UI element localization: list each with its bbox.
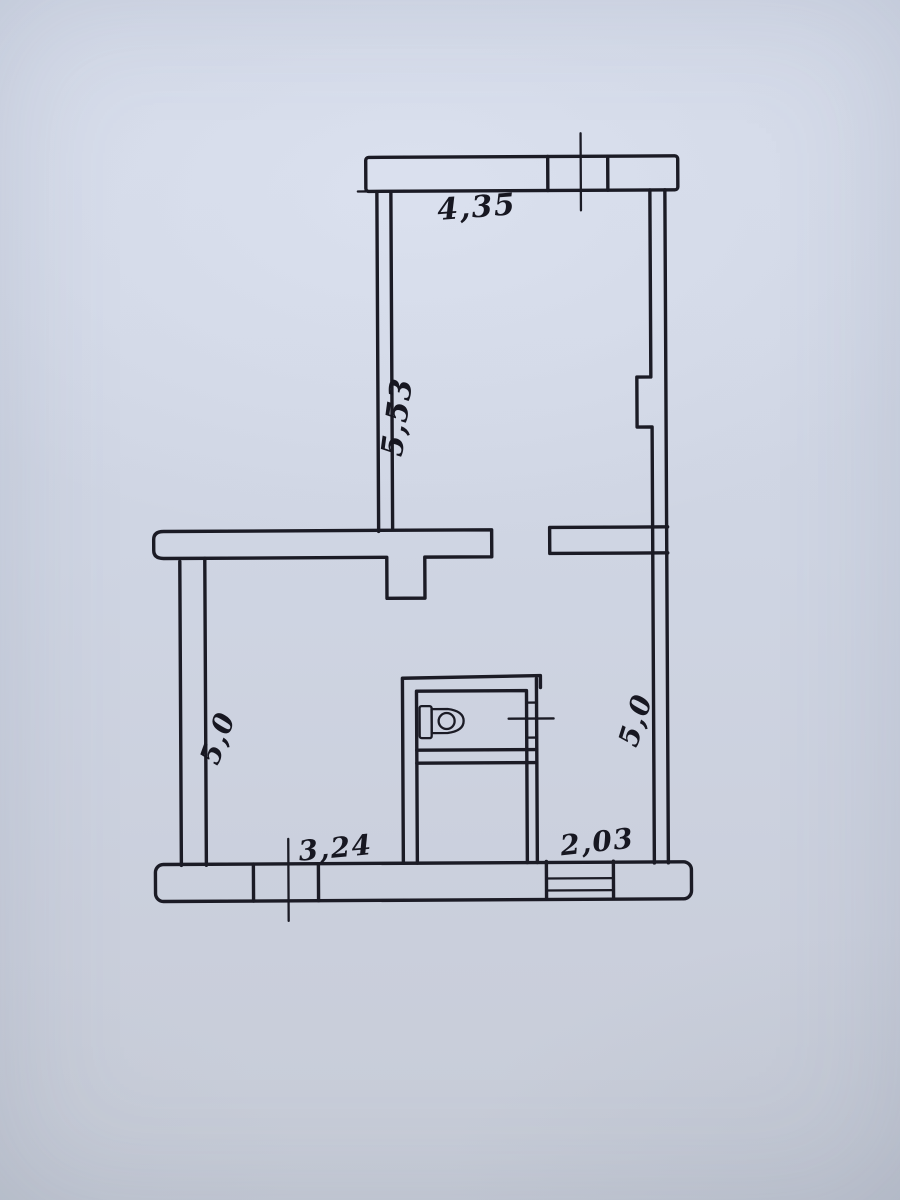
bathroom-divider-line-2 xyxy=(417,763,537,764)
paper-sheet: 4,35 5,53 5,0 5,0 3,24 2,03 xyxy=(0,0,900,1200)
bathroom-outer-left-top xyxy=(402,676,541,864)
entrance-door xyxy=(546,861,613,898)
bathroom-outer-right xyxy=(536,679,537,863)
dimension-upper-room-depth: 5,53 xyxy=(375,375,420,458)
top-wall xyxy=(358,133,678,212)
floor-plan-drawing: 4,35 5,53 5,0 5,0 3,24 2,03 xyxy=(0,0,900,1202)
dimension-lower-left-depth: 5,0 xyxy=(193,707,242,768)
toilet-tank xyxy=(420,706,432,738)
upper-left-wall-inner xyxy=(391,192,393,528)
toilet-drain xyxy=(439,713,455,729)
lower-left-wall-outer xyxy=(180,561,182,865)
middle-wall-right-band xyxy=(550,527,668,554)
bathroom xyxy=(402,675,554,863)
middle-wall-right xyxy=(550,527,668,554)
dimension-bottom-left-width: 3,24 xyxy=(297,828,374,868)
lower-left-wall-inner xyxy=(205,558,207,865)
lower-left-wall xyxy=(180,558,207,865)
upper-left-wall-outer xyxy=(377,192,379,531)
dimension-top-width: 4,35 xyxy=(436,187,517,228)
dimension-bottom-right-width: 2,03 xyxy=(557,821,635,862)
bathroom-divider-line-1 xyxy=(417,750,537,751)
toilet-icon xyxy=(420,706,464,738)
bottom-wall-band xyxy=(155,862,691,902)
bathroom-inner-walls xyxy=(416,691,527,864)
upper-left-wall xyxy=(377,192,393,531)
top-wall-band xyxy=(366,156,678,192)
